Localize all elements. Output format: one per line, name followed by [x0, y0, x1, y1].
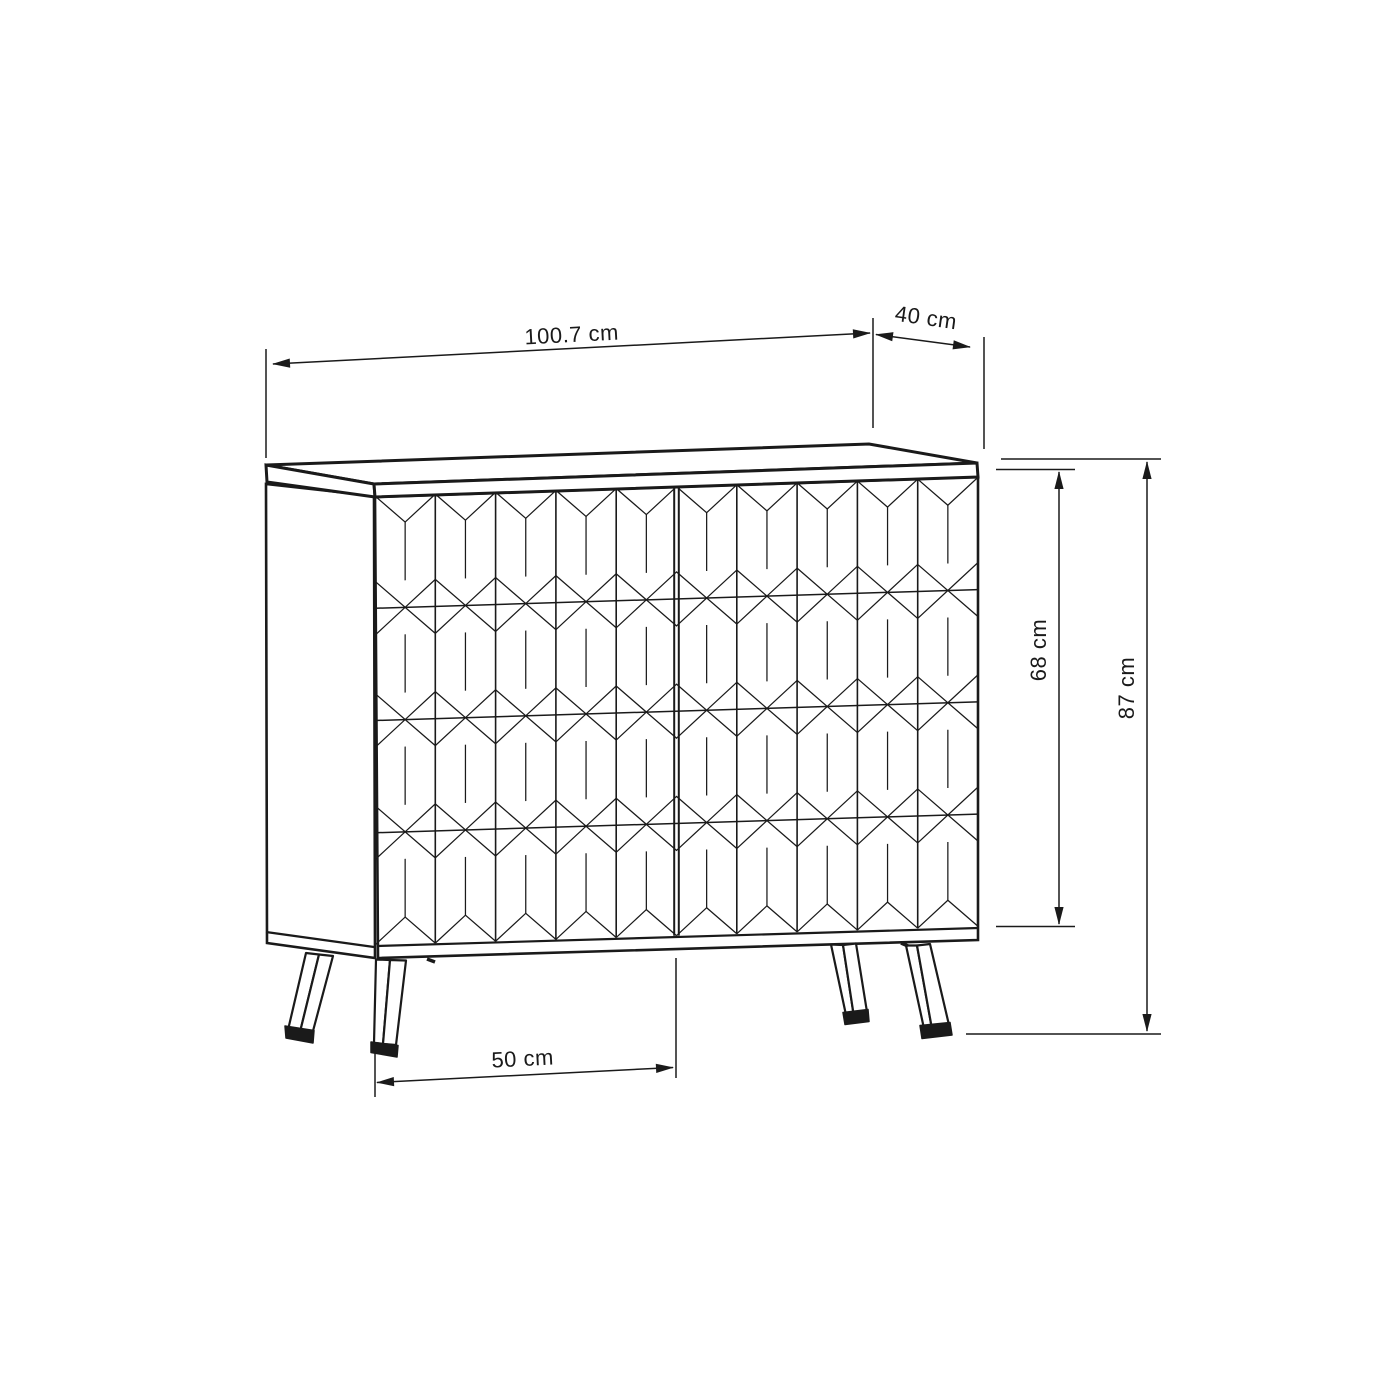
back-right-leg [831, 944, 869, 1025]
technical-drawing-page: 100.7 cm 40 cm 68 cm 87 cm 50 cm [0, 0, 1389, 1389]
cabinet-body [266, 444, 1008, 1057]
dimension-label-top-width: 100.7 cm [524, 320, 620, 350]
dimension-label-body-height: 68 cm [1026, 619, 1051, 681]
cabinet-legs [285, 943, 952, 1057]
sideboard-dimension-drawing: 100.7 cm 40 cm 68 cm 87 cm 50 cm [0, 0, 1389, 1389]
dimension-label-total-height: 87 cm [1114, 657, 1139, 719]
front-left-leg [371, 960, 406, 1058]
cabinet-left-side-panel [266, 484, 375, 958]
back-left-leg [285, 953, 333, 1043]
dimension-label-leg-span: 50 cm [491, 1044, 555, 1072]
dimension-leg-span: 50 cm [375, 958, 676, 1097]
dimension-top-width: 100.7 cm [266, 318, 873, 458]
dimension-total-height: 87 cm [966, 459, 1161, 1034]
leg-mount-mark-left [427, 959, 435, 962]
front-right-leg [906, 944, 952, 1039]
dimension-label-top-depth: 40 cm [893, 301, 958, 334]
dimension-top-depth: 40 cm [876, 301, 984, 449]
leg-mount-mark-right [901, 943, 908, 946]
dimension-body-height: 68 cm [996, 470, 1075, 927]
